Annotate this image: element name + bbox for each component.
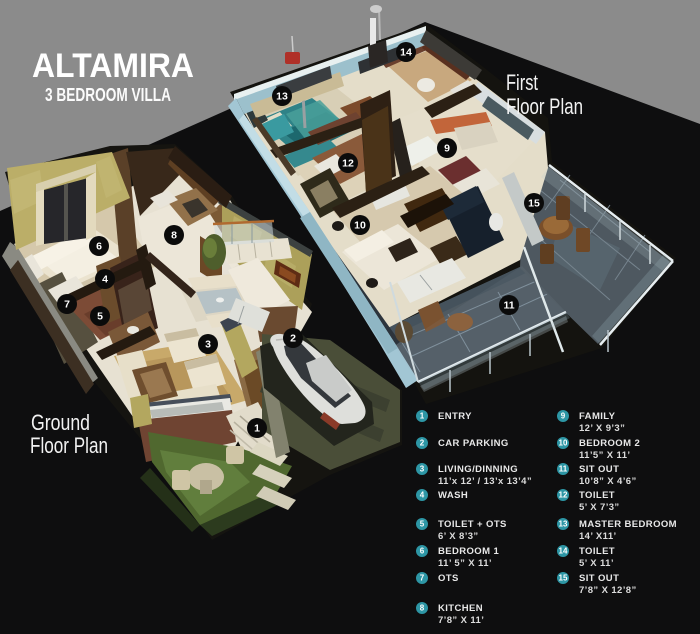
- svg-text:11: 11: [503, 300, 514, 312]
- svg-text:SIT OUT: SIT OUT: [579, 464, 619, 475]
- svg-text:LIVING/DINNING: LIVING/DINNING: [438, 464, 518, 475]
- svg-text:12: 12: [559, 491, 568, 500]
- svg-text:9: 9: [444, 143, 450, 155]
- svg-text:11: 11: [559, 465, 568, 474]
- svg-text:3: 3: [420, 465, 425, 474]
- svg-text:Floor Plan: Floor Plan: [30, 433, 108, 458]
- svg-text:4: 4: [420, 491, 425, 500]
- svg-text:10’8” X 4’6”: 10’8” X 4’6”: [579, 476, 637, 487]
- svg-text:OTS: OTS: [438, 573, 459, 584]
- svg-text:First: First: [506, 70, 538, 95]
- svg-text:15: 15: [528, 198, 540, 210]
- svg-text:FAMILY: FAMILY: [579, 411, 616, 422]
- svg-text:13: 13: [559, 520, 568, 529]
- svg-text:ENTRY: ENTRY: [438, 411, 472, 422]
- svg-text:TOILET: TOILET: [579, 546, 615, 557]
- svg-text:10: 10: [354, 220, 366, 232]
- svg-text:2: 2: [290, 333, 296, 345]
- svg-text:Ground: Ground: [31, 410, 90, 435]
- svg-text:7’8” X 12’8”: 7’8” X 12’8”: [579, 585, 637, 596]
- svg-text:ALTAMIRA: ALTAMIRA: [32, 47, 194, 85]
- svg-text:8: 8: [171, 230, 177, 242]
- svg-text:1: 1: [254, 423, 260, 435]
- svg-text:11’ 5” X 11’: 11’ 5” X 11’: [438, 558, 492, 569]
- svg-text:7: 7: [64, 299, 70, 311]
- svg-text:7: 7: [420, 574, 425, 583]
- svg-text:6’ X 8’3”: 6’ X 8’3”: [438, 531, 479, 542]
- svg-text:6: 6: [96, 241, 102, 253]
- svg-text:SIT OUT: SIT OUT: [579, 573, 619, 584]
- svg-text:15: 15: [559, 574, 568, 583]
- svg-text:5: 5: [420, 520, 425, 529]
- svg-text:BEDROOM 2: BEDROOM 2: [579, 438, 640, 449]
- svg-text:BEDROOM 1: BEDROOM 1: [438, 546, 499, 557]
- svg-text:4: 4: [102, 274, 108, 286]
- svg-text:MASTER BEDROOM: MASTER BEDROOM: [579, 519, 677, 530]
- svg-text:12: 12: [342, 158, 354, 170]
- svg-text:8: 8: [420, 604, 425, 613]
- svg-text:14’ X11’: 14’ X11’: [579, 531, 617, 542]
- svg-text:14: 14: [559, 547, 568, 556]
- svg-text:5’ X 7’3”: 5’ X 7’3”: [579, 502, 620, 513]
- svg-text:WASH: WASH: [438, 490, 468, 501]
- svg-text:11’x 12’ / 13’x 13’4”: 11’x 12’ / 13’x 13’4”: [438, 476, 532, 487]
- svg-text:14: 14: [400, 47, 412, 59]
- svg-text:KITCHEN: KITCHEN: [438, 603, 483, 614]
- svg-text:9: 9: [561, 412, 566, 421]
- svg-text:10: 10: [559, 439, 568, 448]
- svg-text:1: 1: [420, 412, 425, 421]
- svg-text:3 BEDROOM VILLA: 3 BEDROOM VILLA: [45, 85, 171, 105]
- svg-text:11’5” X 11’: 11’5” X 11’: [579, 450, 630, 461]
- svg-text:3: 3: [205, 339, 211, 351]
- svg-text:13: 13: [276, 91, 288, 103]
- svg-text:5’ X 11’: 5’ X 11’: [579, 558, 614, 569]
- svg-text:5: 5: [97, 311, 103, 323]
- svg-text:2: 2: [420, 439, 425, 448]
- svg-text:Floor Plan: Floor Plan: [506, 94, 583, 119]
- svg-text:7’8” X 11’: 7’8” X 11’: [438, 615, 484, 626]
- svg-text:TOILET: TOILET: [579, 490, 615, 501]
- svg-text:CAR PARKING: CAR PARKING: [438, 438, 509, 449]
- svg-text:12’ X 9’3”: 12’ X 9’3”: [579, 423, 625, 434]
- svg-text:6: 6: [420, 547, 425, 556]
- svg-text:TOILET + OTS: TOILET + OTS: [438, 519, 507, 530]
